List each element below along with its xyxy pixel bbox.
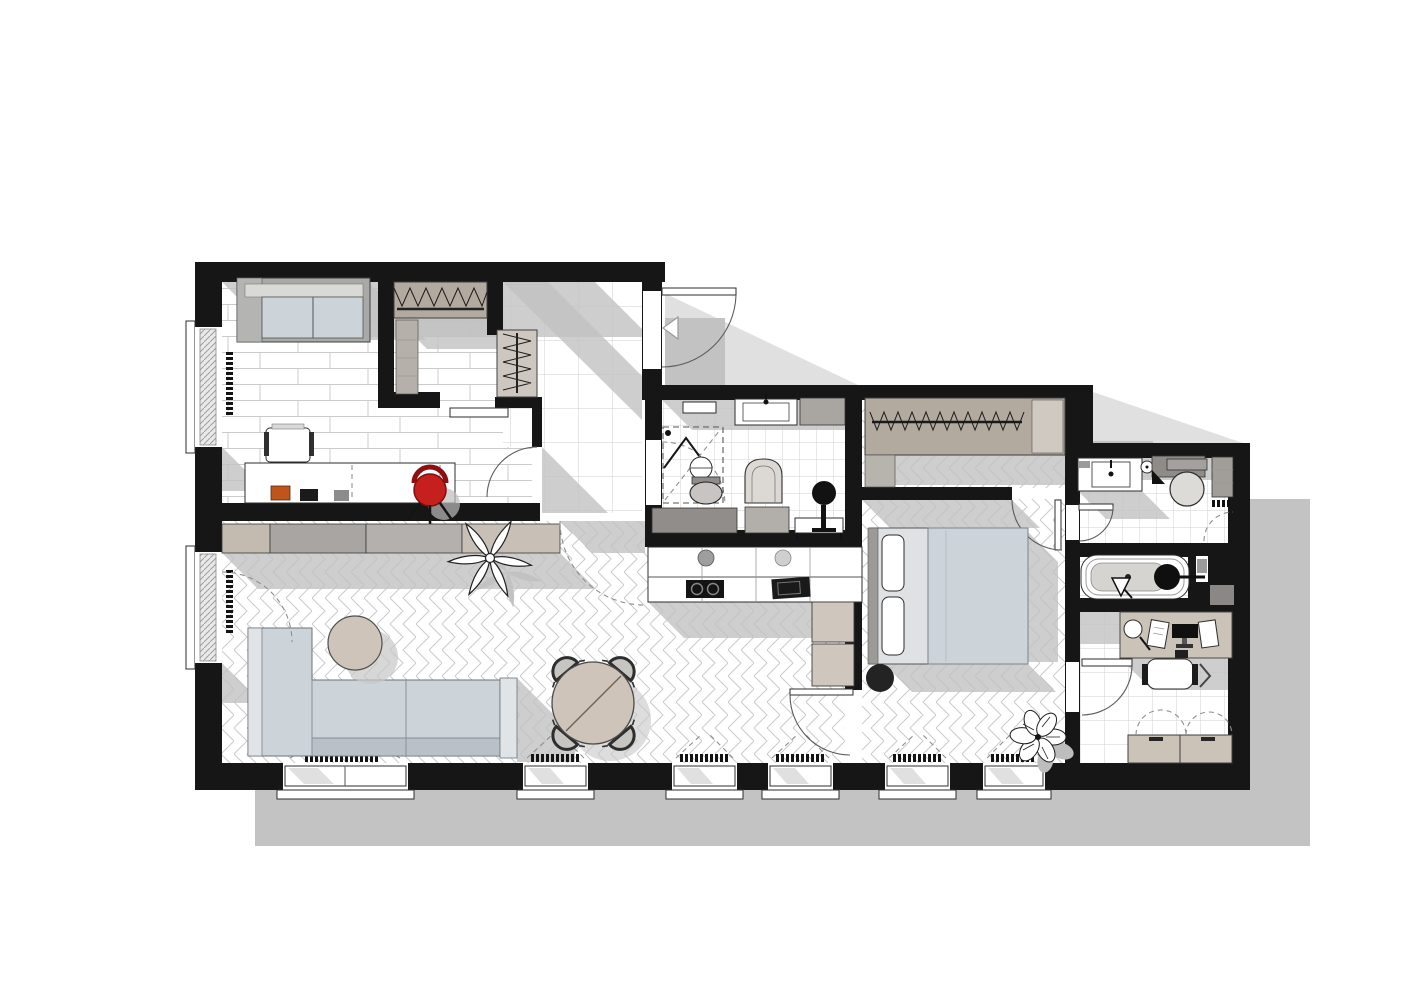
cooktop-icon bbox=[686, 580, 724, 598]
white-desk-chair bbox=[264, 424, 314, 462]
round-washbasin bbox=[690, 457, 712, 479]
round-dining-table bbox=[552, 662, 634, 744]
sink-bowl-icon-2 bbox=[775, 550, 791, 566]
office-door-opening bbox=[1066, 662, 1079, 712]
wardrobe-door-opening bbox=[1012, 488, 1060, 499]
closet-shelves bbox=[396, 320, 418, 394]
laundry-chair bbox=[745, 459, 782, 503]
desk-orange-item bbox=[271, 486, 290, 500]
bathroom-vanity bbox=[1078, 458, 1142, 491]
toilet-paper-holder bbox=[1141, 461, 1153, 473]
notebook bbox=[1198, 620, 1218, 648]
entry-door-opening bbox=[643, 291, 661, 369]
tub-side-shelf bbox=[1210, 585, 1234, 605]
desk-grey-item bbox=[334, 490, 349, 501]
keyboard-icon bbox=[1175, 650, 1188, 658]
entry-door-panel bbox=[662, 288, 736, 295]
bedside-pouf bbox=[866, 664, 894, 692]
fridge-cabinets bbox=[812, 602, 854, 686]
toilet bbox=[690, 477, 722, 504]
pillow bbox=[882, 535, 904, 591]
daybed-sofa bbox=[237, 278, 370, 342]
toilet-2 bbox=[1167, 459, 1207, 506]
washing-machine bbox=[745, 507, 789, 533]
closet-hanger-rail bbox=[394, 282, 487, 318]
wc-door-opening bbox=[646, 440, 661, 505]
kitchen-sink-dark bbox=[771, 577, 810, 600]
closet-side-cabinet bbox=[497, 330, 537, 397]
hall-bench bbox=[450, 408, 508, 417]
monitor-icon bbox=[1172, 624, 1198, 638]
pillow bbox=[882, 597, 904, 655]
laptop-icon bbox=[300, 489, 318, 501]
wc-side-cabinet bbox=[800, 398, 845, 425]
desk-lamp-icon bbox=[1124, 620, 1142, 638]
bathroom-door-opening bbox=[1066, 505, 1079, 540]
sink-bowl-icon bbox=[698, 550, 714, 566]
blanket bbox=[928, 528, 1028, 664]
wc-vanity-dark bbox=[652, 508, 737, 533]
niche-item bbox=[1197, 559, 1207, 573]
floor-plan-svg bbox=[0, 0, 1414, 1000]
double-bed bbox=[868, 528, 1028, 664]
office-desk bbox=[1120, 612, 1232, 658]
wc-shelf bbox=[683, 402, 716, 413]
kitchen-counter bbox=[648, 547, 862, 602]
floor-plan-canvas bbox=[0, 0, 1414, 1000]
